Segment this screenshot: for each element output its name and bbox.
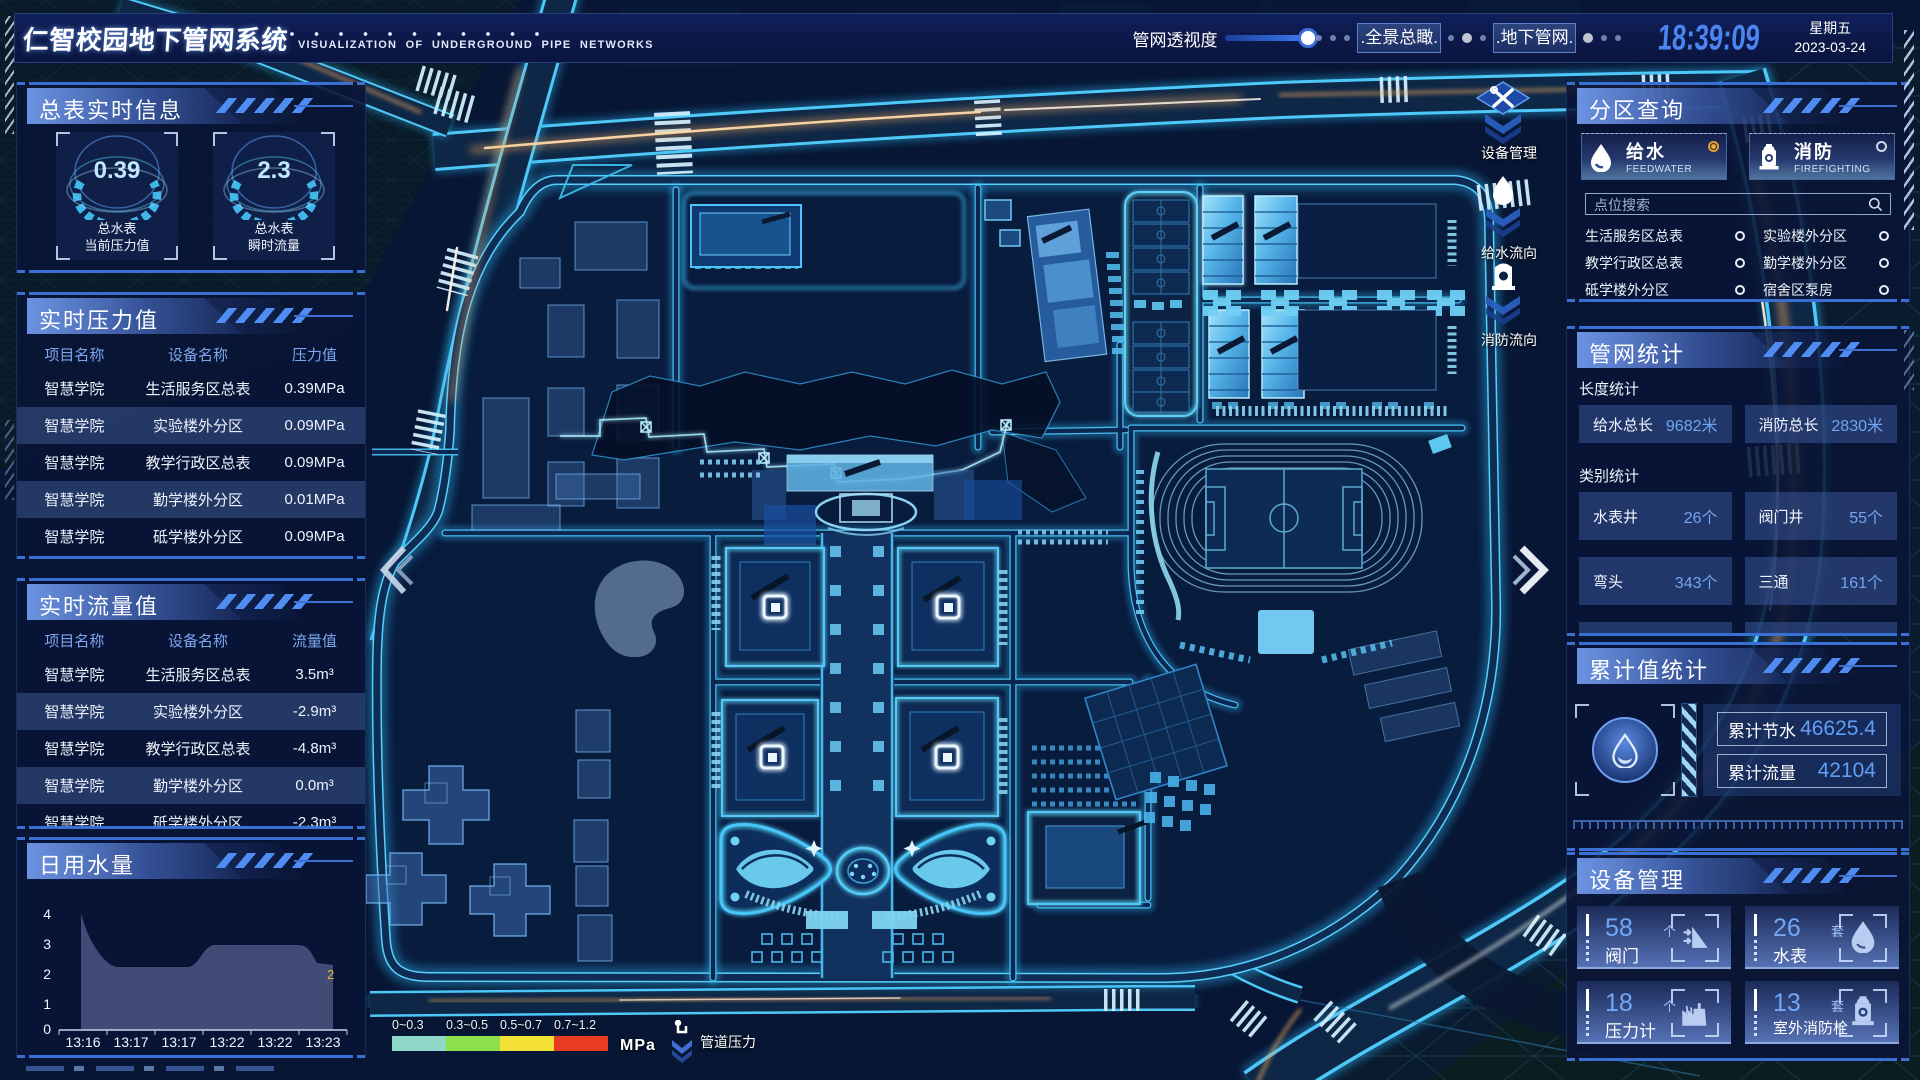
svg-text:1: 1 bbox=[43, 996, 51, 1012]
svg-text:3: 3 bbox=[43, 936, 51, 952]
svg-text:2: 2 bbox=[327, 967, 334, 982]
svg-text:13:22: 13:22 bbox=[209, 1034, 244, 1047]
svg-text:0: 0 bbox=[43, 1021, 51, 1037]
svg-text:13:17: 13:17 bbox=[113, 1034, 148, 1047]
svg-text:13:22: 13:22 bbox=[257, 1034, 292, 1047]
svg-text:13:16: 13:16 bbox=[65, 1034, 100, 1047]
svg-text:2: 2 bbox=[43, 966, 51, 982]
svg-text:13:17: 13:17 bbox=[161, 1034, 196, 1047]
svg-text:4: 4 bbox=[43, 906, 51, 922]
svg-text:13:23: 13:23 bbox=[305, 1034, 340, 1047]
